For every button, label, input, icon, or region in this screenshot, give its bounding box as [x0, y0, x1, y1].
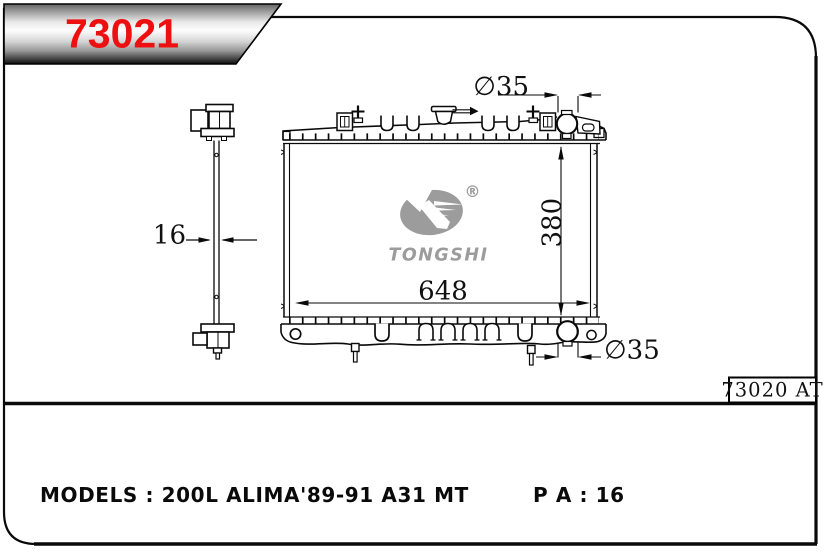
mount-bracket-left — [337, 113, 353, 131]
inlet-pipe — [557, 114, 577, 134]
catalog-page: 73021 — [0, 0, 828, 555]
dim-bottom-pipe-diameter: ∅35 — [536, 336, 660, 366]
dim-label-core-height: 380 — [538, 198, 568, 248]
registered-mark: ® — [465, 182, 481, 201]
mount-hole-right — [587, 330, 596, 339]
bracket-u-right — [518, 324, 532, 342]
filler-cap — [432, 107, 479, 125]
drain-plug-right — [528, 346, 536, 366]
ref-code: 73020 AT — [721, 379, 823, 402]
part-number: 73021 — [65, 11, 179, 57]
part-number-banner: 73021 — [4, 4, 281, 64]
inlet-pipe-assembly — [557, 111, 600, 139]
bleed-screw-right — [527, 106, 540, 123]
specs-right-column: P A : 16 DPI : OEM : NISSENS: — [533, 419, 643, 555]
brand-watermark: ® TONGSHI — [388, 182, 488, 266]
center-clips — [417, 324, 502, 341]
mount-hole-left — [290, 329, 300, 339]
specs-left-column: MODELS : 200L ALIMA'89-91 A31 MT CORE SI… — [40, 419, 469, 555]
mount-bracket-right — [540, 113, 556, 131]
drain-plug-left — [352, 344, 360, 363]
bracket-u-left — [375, 324, 389, 342]
side-view-drawing — [191, 105, 234, 360]
dim-core-thickness: 16 — [153, 221, 257, 251]
dim-core-width: 648 — [295, 277, 590, 307]
bottom-tank — [281, 321, 606, 365]
dim-core-height: 380 — [538, 146, 568, 316]
dim-label-thickness: 16 — [153, 221, 186, 251]
dim-label-core-width: 648 — [418, 277, 468, 307]
brand-name: TONGSHI — [388, 246, 488, 266]
spec-pa: P A : 16 — [533, 480, 643, 510]
dim-top-pipe-diameter: ∅35 — [473, 72, 601, 113]
ref-code-box: 73020 AT — [721, 378, 823, 403]
spec-models: MODELS : 200L ALIMA'89-91 A31 MT — [40, 480, 469, 510]
dim-label-top-diameter: ∅35 — [473, 72, 529, 102]
dim-label-bottom-diameter: ∅35 — [604, 336, 660, 366]
bleed-screw-left — [352, 106, 365, 123]
outlet-pipe — [557, 321, 578, 342]
